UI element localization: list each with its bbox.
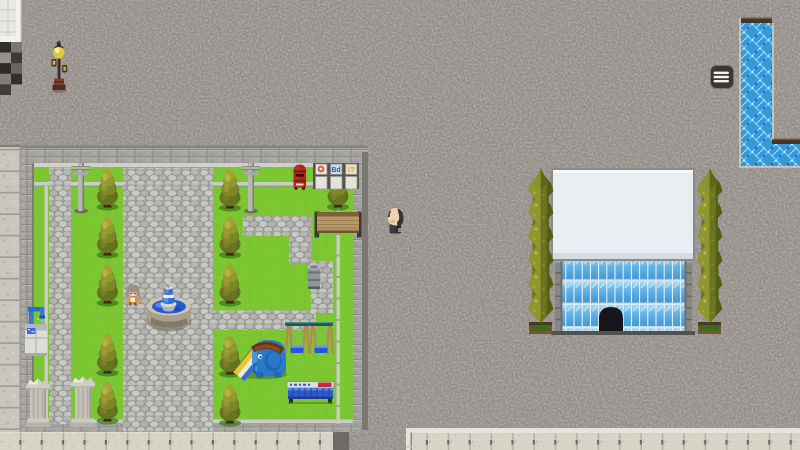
svg-text:Bd: Bd [331, 167, 340, 174]
svg-text:!?: !? [348, 167, 355, 174]
